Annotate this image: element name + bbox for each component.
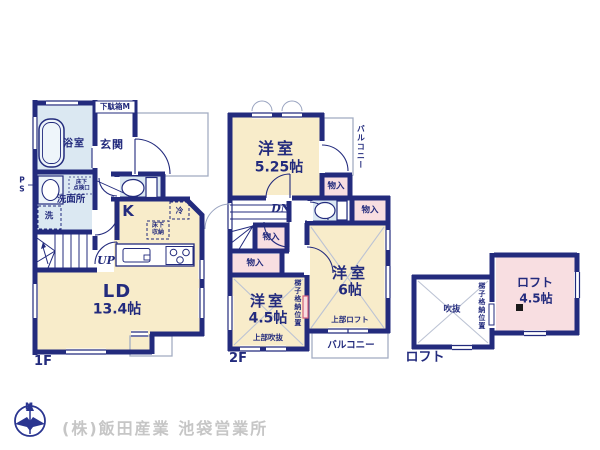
- loft-floor-label: ロフト: [405, 351, 444, 365]
- stairs-up-label: UP: [97, 255, 115, 267]
- above-loft-label: 上部ロフト: [331, 316, 369, 324]
- toilet1f-door-gap: [114, 177, 120, 197]
- closet-a-label: 物入: [327, 182, 344, 191]
- room45-label: 洋室: [250, 293, 286, 310]
- entrance-label: 玄関: [100, 139, 124, 151]
- closet-b-label: 物入: [361, 206, 378, 215]
- loft-size-label: 4.5帖: [519, 292, 552, 305]
- bathroom-label: 浴室: [63, 139, 85, 150]
- kitchen-label: K: [122, 203, 134, 220]
- entrance-porch-outline: [137, 113, 208, 176]
- company-name: (株)飯田産業 池袋営業所: [62, 415, 268, 439]
- balcony-right-label: バルコニー: [356, 125, 365, 170]
- room525-label: 洋室: [258, 140, 296, 158]
- room525-size: 5.25帖: [255, 160, 304, 175]
- inspection-hatch-label: 床下 点検口: [73, 179, 90, 192]
- compass-north-label: N: [25, 402, 33, 413]
- floor2-label: 2F: [229, 352, 247, 366]
- washroom-door-gap: [92, 210, 98, 236]
- living-dining-size: 13.4帖: [93, 302, 142, 317]
- ladder-marker-2f: [303, 296, 308, 318]
- loft-plan: [412, 253, 581, 351]
- closet-d-label: 物入: [246, 259, 263, 268]
- toilet1f-tank: [146, 178, 157, 198]
- bath-door-gap: [92, 146, 98, 168]
- room6-door-gap: [304, 245, 310, 275]
- underfloor-storage-label: 床下 収納: [152, 223, 164, 237]
- toilet2f-tank: [337, 201, 347, 220]
- floor1-label: 1F: [34, 355, 52, 369]
- laundry-label: 洗: [45, 212, 54, 221]
- toilet2f-door-gap: [307, 201, 313, 221]
- washroom-label: 洗面所: [57, 195, 86, 205]
- balcony-right-outline: [324, 118, 353, 175]
- living-dining-label: LD: [103, 282, 131, 302]
- balcony-bottom-label: バルコニー: [327, 341, 374, 351]
- room45-size: 4.5帖: [249, 311, 288, 326]
- floorplan-drawing: [0, 0, 600, 450]
- closet-c-label: 物入: [262, 233, 279, 242]
- shoe-cabinet-label: 下駄箱M: [100, 103, 130, 111]
- stairs-1f: [37, 234, 87, 268]
- toilet1f-bowl: [122, 180, 144, 197]
- room525-door-gap: [266, 195, 292, 201]
- floorplan-page: 浴室 玄関 下駄箱M P S 床下 点検口 洗面所 洗 K 冷 床下 収納 UP…: [0, 0, 600, 450]
- loft-ladder-rect: [489, 304, 494, 325]
- fridge-label: 冷: [176, 206, 184, 214]
- balcony-door-gap: [319, 141, 325, 173]
- loft-name-label: ロフト: [517, 276, 553, 289]
- stairs-down-label: DN: [271, 203, 291, 215]
- void-label: 吹抜: [443, 305, 460, 314]
- pipe-space-label: P S: [19, 176, 25, 193]
- toilet2f-bowl: [315, 203, 335, 219]
- stove: [166, 247, 193, 265]
- ladder-position-2f-label: 梯子格納位置: [293, 279, 301, 327]
- room6-label: 洋室: [332, 265, 368, 282]
- room6-size: 6帖: [338, 283, 362, 298]
- above-void-label: 上部吹抜: [253, 334, 283, 342]
- ladder-position-loft-label: 梯子格納位置: [477, 282, 485, 330]
